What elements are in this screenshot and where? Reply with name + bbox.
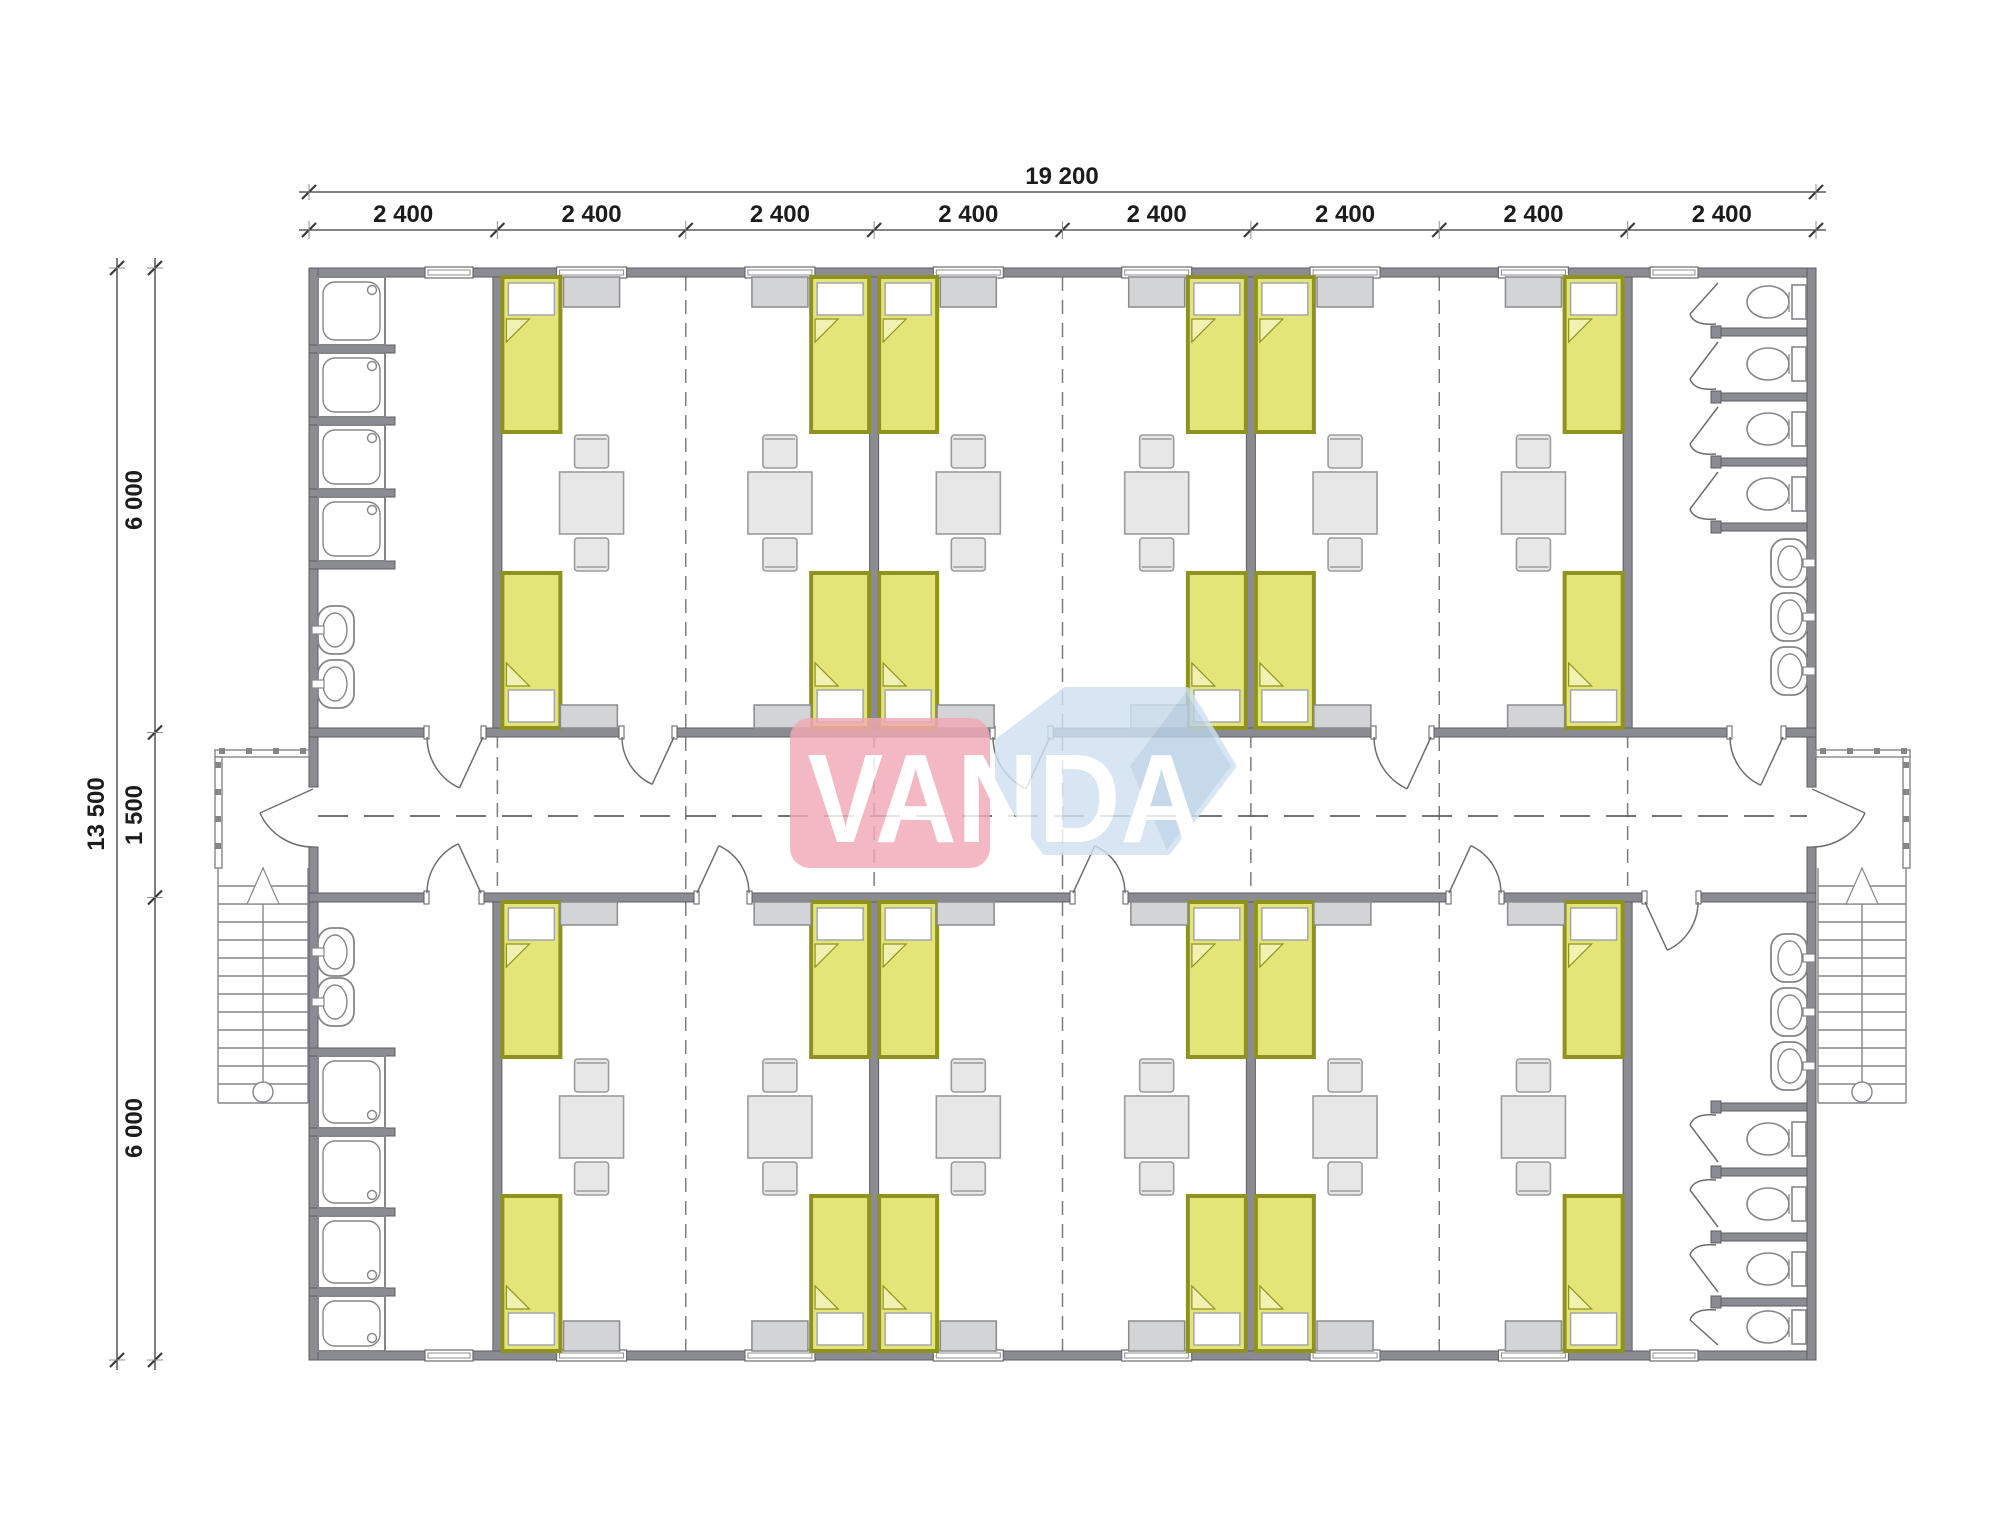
dim-label-left-segment-3: 6 000 bbox=[121, 1098, 148, 1158]
bed bbox=[879, 573, 937, 728]
bed bbox=[1256, 277, 1314, 432]
bed bbox=[1565, 1196, 1623, 1351]
bed bbox=[502, 1196, 560, 1351]
dim-label-module-4: 2 400 bbox=[938, 201, 998, 228]
bed bbox=[879, 902, 937, 1057]
bed bbox=[811, 277, 869, 432]
window bbox=[1650, 1350, 1698, 1361]
toilet bbox=[1747, 1252, 1806, 1286]
bed bbox=[1565, 277, 1623, 432]
shower-stall bbox=[318, 1056, 385, 1128]
toilet bbox=[1747, 477, 1806, 511]
dim-label-left-segment-2: 1 500 bbox=[121, 785, 148, 845]
dim-label-module-3: 2 400 bbox=[750, 201, 810, 228]
window bbox=[425, 267, 473, 278]
bed bbox=[1256, 573, 1314, 728]
bed bbox=[1256, 1196, 1314, 1351]
bed bbox=[1565, 573, 1623, 728]
bed bbox=[1188, 1196, 1246, 1351]
table-with-chairs bbox=[1501, 1059, 1565, 1195]
toilet bbox=[1747, 1122, 1806, 1156]
stall-doors bbox=[1690, 283, 1718, 1345]
shower-stall bbox=[318, 1136, 385, 1208]
table-with-chairs bbox=[1313, 435, 1377, 571]
shower-stall bbox=[318, 1216, 385, 1288]
dim-label-left-segment-1: 6 000 bbox=[121, 470, 148, 530]
table-with-chairs bbox=[936, 1059, 1000, 1195]
bed bbox=[1188, 902, 1246, 1057]
toilet bbox=[1747, 412, 1806, 446]
bed bbox=[1188, 277, 1246, 432]
shower-stall bbox=[318, 425, 385, 489]
bed bbox=[811, 1196, 869, 1351]
toilet bbox=[1747, 285, 1806, 319]
table-with-chairs bbox=[748, 1059, 812, 1195]
logo-text: VANDA bbox=[808, 728, 1203, 869]
table-with-chairs bbox=[560, 1059, 624, 1195]
floor-plan: VANDA19 2002 4002 4002 4002 4002 4002 40… bbox=[0, 0, 2000, 1539]
dim-label-top-total: 19 200 bbox=[1025, 163, 1098, 190]
bed bbox=[811, 902, 869, 1057]
table-with-chairs bbox=[936, 435, 1000, 571]
dim-label-left-total: 13 500 bbox=[83, 777, 110, 850]
toilet bbox=[1747, 347, 1806, 381]
dim-label-module-2: 2 400 bbox=[562, 201, 622, 228]
table-with-chairs bbox=[1125, 435, 1189, 571]
table-with-chairs bbox=[1501, 435, 1565, 571]
shower-stall bbox=[318, 277, 385, 345]
bed bbox=[502, 573, 560, 728]
table-with-chairs bbox=[560, 435, 624, 571]
bed bbox=[1565, 902, 1623, 1057]
window bbox=[1650, 267, 1698, 278]
dim-label-module-8: 2 400 bbox=[1692, 201, 1752, 228]
porch-stairs-left bbox=[215, 748, 309, 1103]
bed bbox=[502, 277, 560, 432]
bed bbox=[811, 573, 869, 728]
bed bbox=[879, 277, 937, 432]
bed bbox=[502, 902, 560, 1057]
shower-stall bbox=[318, 353, 385, 417]
shower-stall bbox=[318, 1296, 385, 1351]
table-with-chairs bbox=[748, 435, 812, 571]
dim-label-module-5: 2 400 bbox=[1127, 201, 1187, 228]
toilets bbox=[1747, 285, 1806, 1344]
vanda-logo-watermark: VANDA bbox=[790, 692, 1231, 869]
window bbox=[425, 1350, 473, 1361]
dim-label-module-7: 2 400 bbox=[1503, 201, 1563, 228]
bed bbox=[1256, 902, 1314, 1057]
shower-stall bbox=[318, 497, 385, 561]
table-with-chairs bbox=[1313, 1059, 1377, 1195]
floor-plan-drawing: VANDA19 2002 4002 4002 4002 4002 4002 40… bbox=[0, 0, 2000, 1539]
dim-label-module-6: 2 400 bbox=[1315, 201, 1375, 228]
dim-label-module-1: 2 400 bbox=[373, 201, 433, 228]
bed bbox=[879, 1196, 937, 1351]
toilet bbox=[1747, 1310, 1806, 1344]
table-with-chairs bbox=[1125, 1059, 1189, 1195]
toilet bbox=[1747, 1187, 1806, 1221]
porch-stairs-right bbox=[1816, 748, 1910, 1103]
showers bbox=[318, 277, 385, 1351]
